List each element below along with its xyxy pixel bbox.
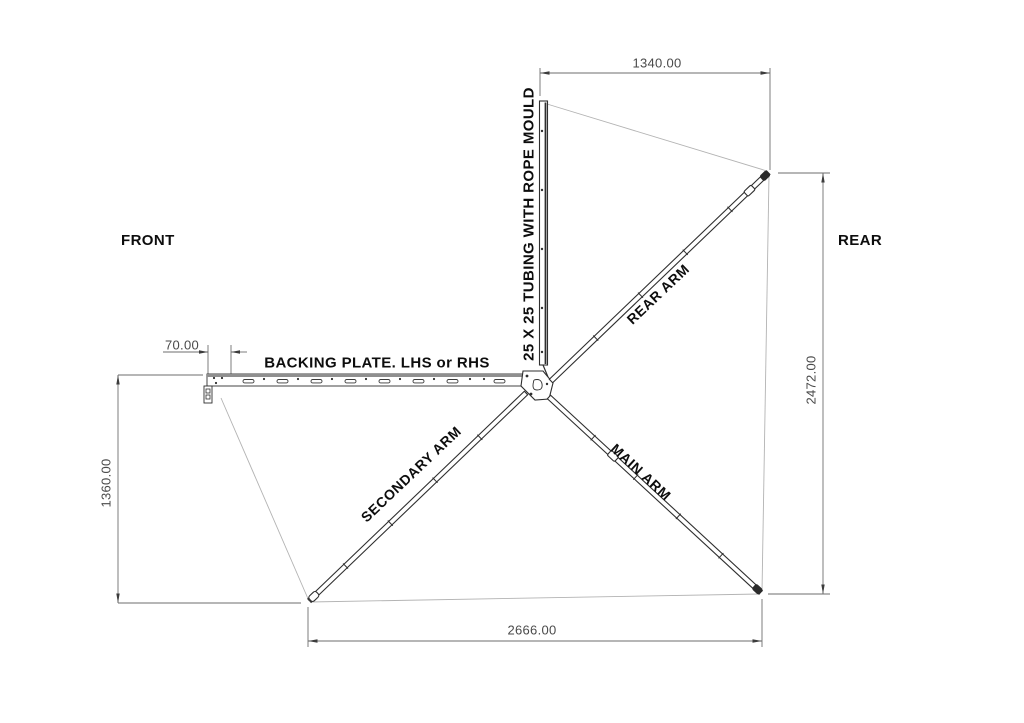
dim-front-height: 1360.00 <box>99 458 114 507</box>
dim-rear-height-lines <box>768 173 830 594</box>
front-label: FRONT <box>121 232 175 249</box>
frame-linework <box>0 0 1024 723</box>
drawing-canvas: FRONT REAR BACKING PLATE. LHS or RHS 25 … <box>0 0 1024 723</box>
dim-top-width-lines <box>540 68 770 170</box>
dim-rear-height: 2472.00 <box>804 355 819 404</box>
dim-bottom-width: 2666.00 <box>507 623 556 638</box>
rear-arm-line <box>549 170 771 384</box>
dim-top-width: 1340.00 <box>632 56 681 71</box>
backing-plate-label: BACKING PLATE. LHS or RHS <box>264 355 490 372</box>
tubing-label: 25 X 25 TUBING WITH ROPE MOULD <box>521 87 538 361</box>
secondary-arm-line <box>307 390 529 603</box>
tube-25x25 <box>540 101 549 377</box>
backing-plate <box>204 374 532 403</box>
rear-label: REAR <box>838 232 882 249</box>
dim-front-height-lines <box>116 375 301 603</box>
dim-plate-offset: 70.00 <box>165 338 199 353</box>
